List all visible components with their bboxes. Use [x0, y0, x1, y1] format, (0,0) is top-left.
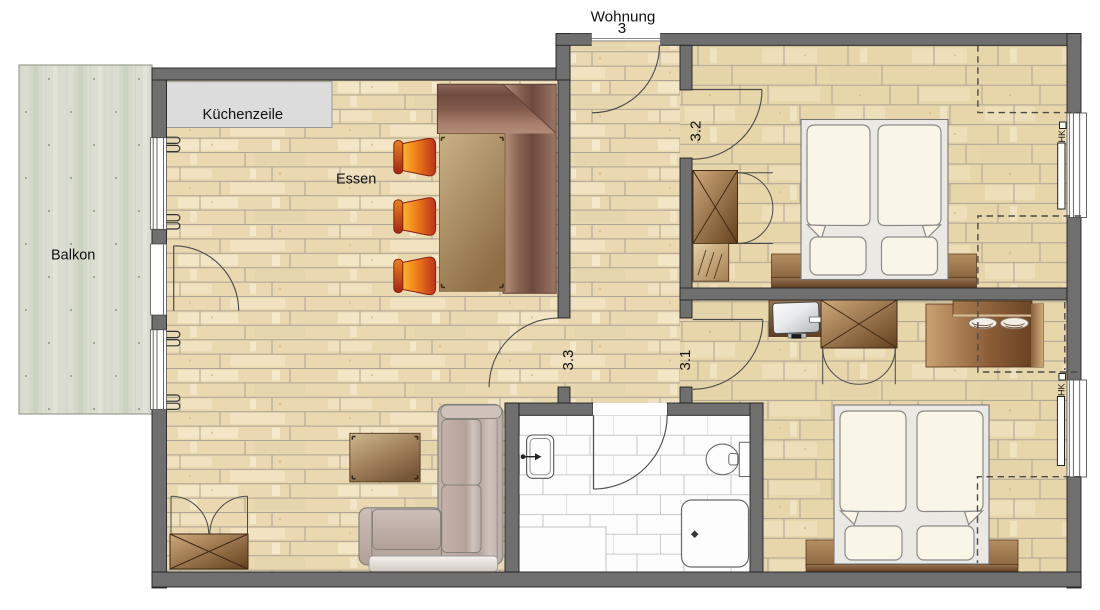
svg-text:Küchenzeile: Küchenzeile [203, 107, 284, 123]
svg-text:HK: HK [1057, 130, 1067, 143]
svg-text:Balkon: Balkon [51, 248, 95, 264]
svg-text:3.3: 3.3 [560, 350, 577, 371]
svg-text:3.2: 3.2 [688, 121, 705, 142]
svg-text:3: 3 [618, 20, 626, 37]
svg-text:Essen: Essen [336, 172, 376, 188]
svg-text:3.1: 3.1 [677, 350, 694, 371]
svg-text:HK: HK [1056, 383, 1066, 396]
